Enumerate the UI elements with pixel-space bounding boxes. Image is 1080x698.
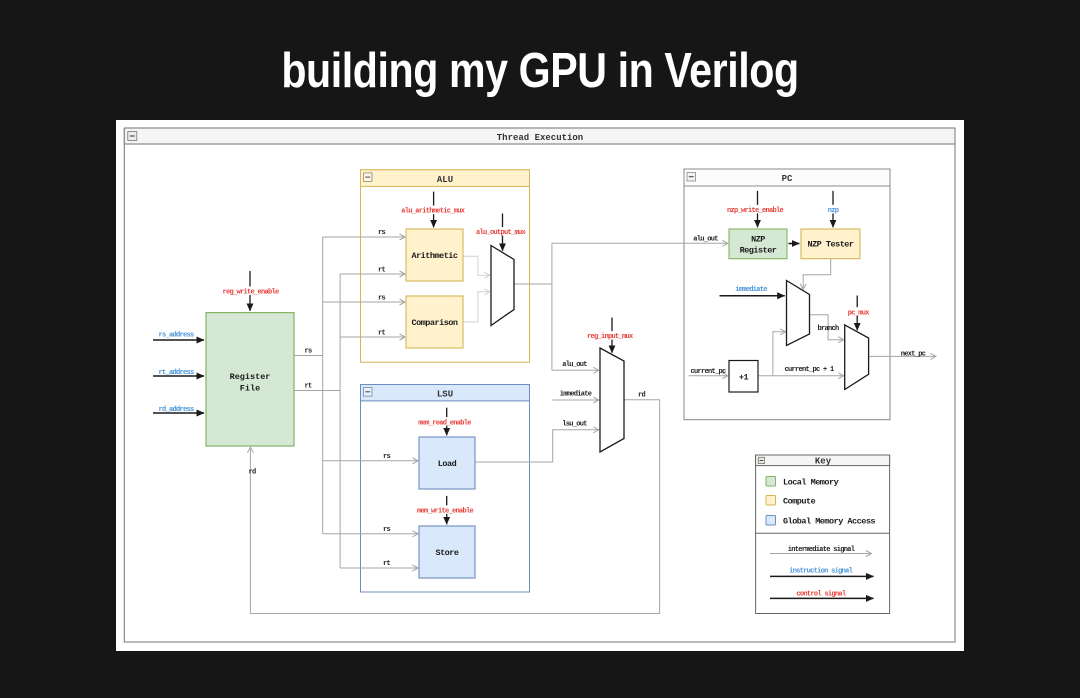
svg-text:instruction signal: instruction signal <box>789 568 853 576</box>
svg-text:current_pc + 1: current_pc + 1 <box>784 366 834 374</box>
svg-text:immediate: immediate <box>735 286 767 294</box>
svg-text:rd: rd <box>638 392 646 400</box>
svg-text:Store: Store <box>435 548 458 558</box>
svg-text:alu_out: alu_out <box>693 236 718 244</box>
svg-text:alu_output_mux: alu_output_mux <box>476 229 527 237</box>
svg-text:mem_read_enable: mem_read_enable <box>418 419 471 427</box>
svg-text:rs: rs <box>383 526 391 534</box>
svg-text:Global Memory Access: Global Memory Access <box>783 516 875 526</box>
svg-text:rt: rt <box>378 329 386 337</box>
svg-text:branch: branch <box>817 325 839 333</box>
svg-text:Comparison: Comparison <box>411 318 457 328</box>
svg-text:rs: rs <box>378 294 386 302</box>
svg-text:Arithmetic: Arithmetic <box>411 251 457 261</box>
svg-text:rs_address: rs_address <box>158 332 194 340</box>
svg-text:Key: Key <box>815 456 832 466</box>
svg-text:ALU: ALU <box>437 175 453 185</box>
svg-text:rt_address: rt_address <box>158 369 194 377</box>
svg-text:rt: rt <box>383 560 391 568</box>
svg-text:current_pc: current_pc <box>690 368 726 376</box>
svg-text:rt: rt <box>378 266 386 274</box>
svg-text:rd: rd <box>248 468 256 476</box>
svg-text:nzp: nzp <box>828 207 839 215</box>
svg-text:intermediate signal: intermediate signal <box>788 546 855 554</box>
svg-text:Thread Execution: Thread Execution <box>497 133 583 143</box>
svg-text:immediate: immediate <box>560 391 592 399</box>
svg-text:rs: rs <box>304 348 312 356</box>
svg-text:NZP: NZP <box>751 234 765 244</box>
svg-text:reg_write_enable: reg_write_enable <box>222 289 279 297</box>
svg-text:lsu_out: lsu_out <box>562 420 587 428</box>
svg-text:Local Memory: Local Memory <box>783 477 839 487</box>
svg-text:alu_arithmetic_mux: alu_arithmetic_mux <box>401 208 466 216</box>
svg-text:control signal: control signal <box>796 591 846 599</box>
svg-text:Register: Register <box>230 372 271 382</box>
svg-text:reg_input_mux: reg_input_mux <box>587 333 634 341</box>
svg-text:Register: Register <box>740 245 777 255</box>
svg-text:+1: +1 <box>739 372 749 382</box>
svg-text:next_pc: next_pc <box>901 351 926 359</box>
svg-text:File: File <box>240 384 260 394</box>
svg-text:NZP Tester: NZP Tester <box>807 240 853 250</box>
svg-text:alu_out: alu_out <box>562 361 587 369</box>
svg-text:Load: Load <box>438 459 457 469</box>
svg-text:Compute: Compute <box>783 496 816 506</box>
svg-text:rs: rs <box>378 229 386 237</box>
svg-text:mem_write_enable: mem_write_enable <box>417 508 474 516</box>
svg-text:PC: PC <box>782 174 793 184</box>
svg-text:pc_mux: pc_mux <box>848 309 871 317</box>
svg-text:rt: rt <box>304 383 312 391</box>
svg-text:nzp_write_enable: nzp_write_enable <box>727 207 784 215</box>
svg-text:rs: rs <box>383 453 391 461</box>
svg-text:rd_address: rd_address <box>158 406 194 414</box>
svg-text:LSU: LSU <box>437 389 453 399</box>
